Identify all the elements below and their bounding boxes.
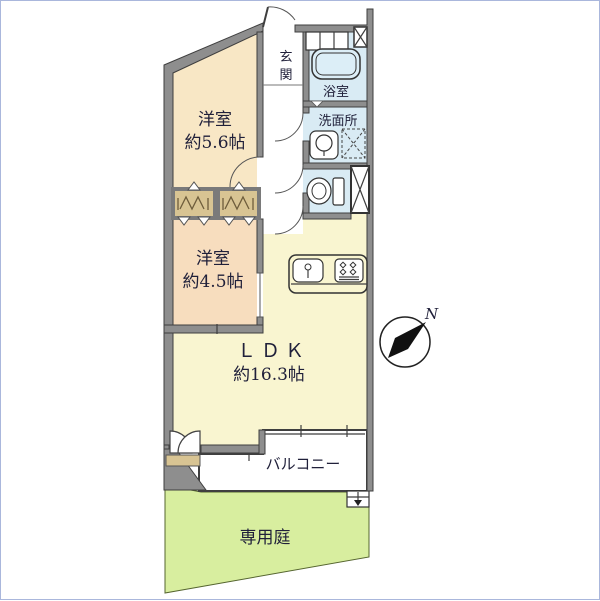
ldk-label: ＬＤＫ — [237, 340, 309, 362]
stove-icon — [335, 259, 363, 282]
vanity-sink-icon — [310, 131, 338, 159]
bedroom2-sliding-door — [257, 273, 263, 317]
floorplan-image: N 洋室 約5.6帖 洋室 約4.5帖 ＬＤＫ 約16.3帖 玄 関 浴室 洗面… — [0, 0, 600, 600]
toilet-icon — [307, 178, 344, 205]
private-garden-label: 専用庭 — [240, 528, 291, 548]
garden-door-step — [166, 455, 200, 466]
compass: N — [380, 305, 439, 367]
bedroom2-label: 洋室 — [196, 249, 230, 269]
bedroom1-label: 洋室 — [198, 110, 232, 130]
bedroom2-size: 約4.5帖 — [182, 272, 243, 292]
pipe-space-top — [354, 27, 367, 47]
entrance-label-1: 玄 — [279, 50, 292, 65]
washroom-label: 洗面所 — [318, 114, 357, 129]
closets — [173, 182, 259, 225]
ldk-size: 約16.3帖 — [233, 365, 305, 385]
meter-box — [306, 32, 348, 50]
entrance-label-2: 関 — [279, 68, 292, 83]
bathroom-label: 浴室 — [323, 84, 349, 100]
floorplan-svg: N 洋室 約5.6帖 洋室 約4.5帖 ＬＤＫ 約16.3帖 玄 関 浴室 洗面… — [1, 1, 600, 601]
kitchen-sink-icon — [293, 259, 323, 282]
balcony-label: バルコニー — [266, 455, 341, 473]
pipe-space — [351, 166, 369, 213]
garden-step — [347, 491, 369, 507]
bathtub-icon — [312, 49, 360, 79]
closet-left — [173, 189, 215, 218]
kitchen-counter — [289, 255, 367, 293]
bedroom1-size: 約5.6帖 — [184, 133, 245, 153]
compass-north-label: N — [424, 305, 439, 323]
